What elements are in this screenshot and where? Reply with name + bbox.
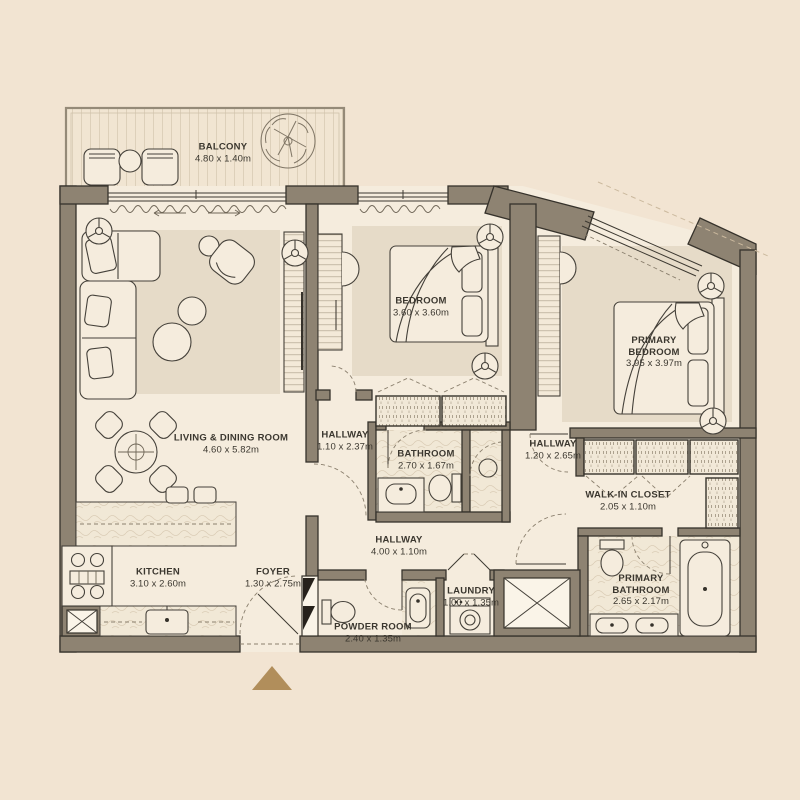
- stove: [62, 546, 112, 606]
- light-icon: [700, 408, 726, 434]
- room-name: LIVING & DINING ROOM: [151, 433, 311, 445]
- room-dims: 2.05 x 1.10m: [563, 501, 693, 513]
- room-name: PRIMARY BEDROOM: [619, 335, 689, 358]
- room-label-kitchen: KITCHEN 3.10 x 2.60m: [108, 567, 208, 590]
- kitchen-sink: [146, 606, 188, 634]
- room-dims: 3.60 x 3.60m: [371, 307, 471, 319]
- room-name: HALLWAY: [300, 430, 390, 442]
- room-dims: 2.65 x 2.17m: [602, 596, 680, 608]
- room-dims: 4.80 x 1.40m: [173, 153, 273, 165]
- coffee-table: [178, 297, 206, 325]
- room-label-balcony: BALCONY 4.80 x 1.40m: [173, 142, 273, 165]
- coffee-table: [153, 323, 191, 361]
- room-name: HALLWAY: [354, 535, 444, 547]
- entrance-triangle: [252, 666, 292, 690]
- room-label-bathroom: BATHROOM 2.70 x 1.67m: [376, 449, 476, 472]
- room-dims: 1.00 x 1.35m: [428, 597, 514, 609]
- room-label-living-dining: LIVING & DINING ROOM 4.60 x 5.82m: [151, 433, 311, 456]
- room-name: BATHROOM: [376, 449, 476, 461]
- light-icon: [698, 273, 724, 299]
- room-label-primary-bedroom: PRIMARY BEDROOM 3.95 x 3.97m: [619, 335, 689, 370]
- room-dims: 3.95 x 3.97m: [619, 358, 689, 370]
- room-label-laundry: LAUNDRY 1.00 x 1.35m: [428, 586, 514, 609]
- room-name: LAUNDRY: [428, 586, 514, 598]
- kitchen-shaft: [62, 606, 102, 636]
- room-dims: 4.00 x 1.10m: [354, 546, 444, 558]
- room-name: HALLWAY: [508, 439, 598, 451]
- room-dims: 1.20 x 2.65m: [508, 450, 598, 462]
- room-name: KITCHEN: [108, 567, 208, 579]
- room-label-hallway-main: HALLWAY 4.00 x 1.10m: [354, 535, 444, 558]
- room-name: PRIMARY BATHROOM: [602, 573, 680, 596]
- light-icon: [86, 218, 112, 244]
- bar-stool: [194, 487, 216, 503]
- room-dims: 2.40 x 1.35m: [313, 633, 433, 645]
- toilet-icon: [429, 475, 451, 501]
- balcony-chair-icon: [84, 149, 120, 185]
- bathtub-icon: [680, 540, 730, 636]
- room-dims: 3.10 x 2.60m: [108, 578, 208, 590]
- room-dims: 2.70 x 1.67m: [376, 460, 476, 472]
- room-dims: 4.60 x 5.82m: [151, 444, 311, 456]
- floor-plan: BALCONY 4.80 x 1.40m LIVING & DINING ROO…: [0, 0, 800, 800]
- room-label-primary-bathroom: PRIMARY BATHROOM 2.65 x 2.17m: [602, 573, 680, 608]
- bar-stool: [166, 487, 188, 503]
- light-icon: [282, 240, 308, 266]
- light-icon: [477, 224, 503, 250]
- room-label-bedroom: BEDROOM 3.60 x 3.60m: [371, 296, 471, 319]
- room-label-walk-in-closet: WALK-IN CLOSET 2.05 x 1.10m: [563, 490, 693, 513]
- toilet-icon: [331, 602, 355, 623]
- floor-plan-svg: [0, 0, 800, 800]
- room-name: WALK-IN CLOSET: [563, 490, 693, 502]
- room-label-hallway-primary: HALLWAY 1.20 x 2.65m: [508, 439, 598, 462]
- room-name: BEDROOM: [371, 296, 471, 308]
- room-label-foyer: FOYER 1.30 x 2.75m: [228, 567, 318, 590]
- room-dims: 1.30 x 2.75m: [228, 578, 318, 590]
- room-name: FOYER: [228, 567, 318, 579]
- balcony-table-icon: [119, 150, 141, 172]
- room-name: POWDER ROOM: [313, 622, 433, 634]
- room-label-powder-room: POWDER ROOM 2.40 x 1.35m: [313, 622, 433, 645]
- bedroom-bed: [390, 242, 498, 346]
- room-name: BALCONY: [173, 142, 273, 154]
- light-icon: [472, 353, 498, 379]
